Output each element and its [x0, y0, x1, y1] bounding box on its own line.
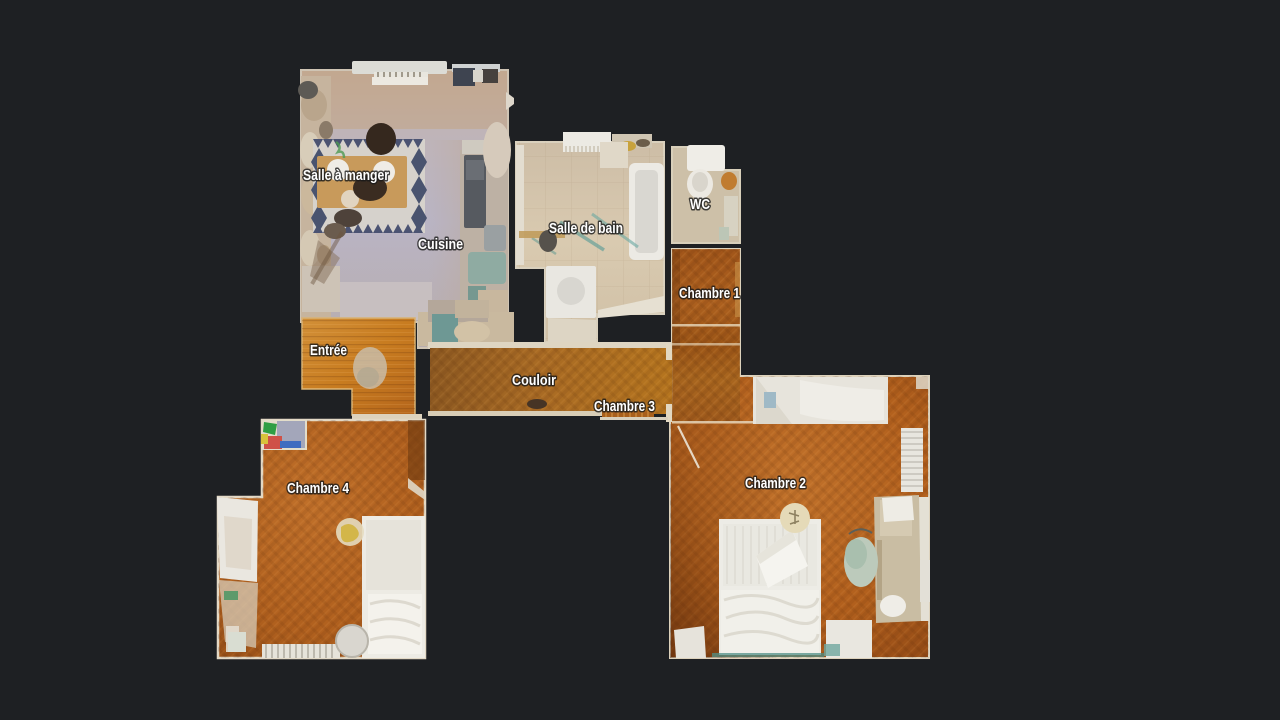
svg-text:Chambre 2: Chambre 2	[745, 476, 806, 492]
svg-text:Chambre 1: Chambre 1	[679, 286, 740, 302]
svg-text:Salle à manger: Salle à manger	[303, 168, 389, 184]
svg-text:WC: WC	[690, 197, 710, 213]
svg-text:Salle de bain: Salle de bain	[549, 221, 623, 237]
svg-text:Couloir: Couloir	[512, 373, 556, 389]
svg-text:Entrée: Entrée	[310, 343, 347, 359]
svg-text:Cuisine: Cuisine	[418, 237, 463, 253]
svg-text:Chambre 4: Chambre 4	[287, 481, 349, 497]
svg-text:Chambre 3: Chambre 3	[594, 399, 655, 415]
